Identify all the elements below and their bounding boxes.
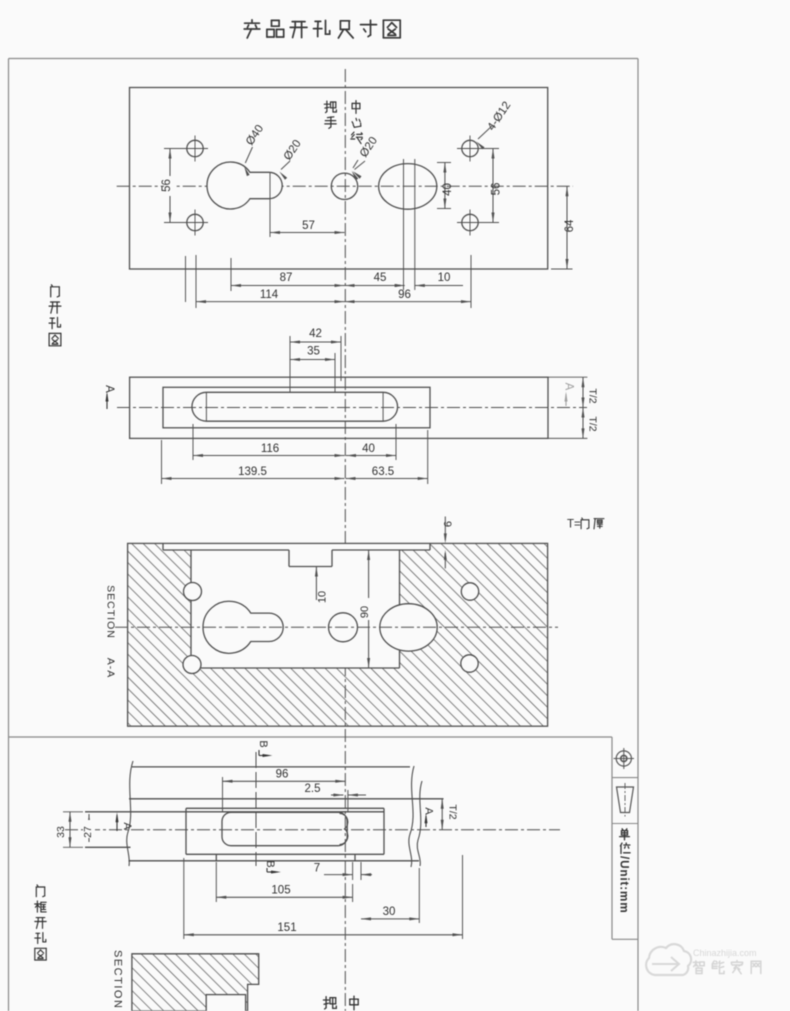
svg-text:56: 56 <box>491 183 503 196</box>
svg-text:90: 90 <box>359 606 371 618</box>
svg-text:35: 35 <box>307 346 320 358</box>
svg-text:A: A <box>563 383 575 391</box>
svg-text:45: 45 <box>374 272 387 284</box>
svg-text:33: 33 <box>55 826 67 838</box>
svg-text:30: 30 <box>383 906 396 918</box>
svg-text:42: 42 <box>309 328 322 340</box>
svg-text:87: 87 <box>280 272 293 284</box>
svg-text:64: 64 <box>564 219 576 232</box>
svg-text:SECTION: SECTION <box>112 950 124 1009</box>
svg-text:T/2: T/2 <box>447 804 459 819</box>
svg-text:40: 40 <box>362 443 375 455</box>
svg-text:6: 6 <box>443 521 455 527</box>
svg-text:151: 151 <box>277 922 296 934</box>
svg-text:63.5: 63.5 <box>372 466 394 478</box>
svg-text:A: A <box>103 385 115 393</box>
svg-text:Chinazhijia.com: Chinazhijia.com <box>693 948 757 958</box>
svg-text:2.5: 2.5 <box>305 783 321 795</box>
svg-text:SECTION: SECTION <box>105 585 117 639</box>
svg-text:T/2: T/2 <box>587 416 599 431</box>
svg-text:116: 116 <box>261 443 279 455</box>
svg-text:B: B <box>257 740 269 747</box>
svg-text:A: A <box>423 807 435 815</box>
svg-text:96: 96 <box>276 769 289 781</box>
svg-text:10: 10 <box>317 591 329 603</box>
svg-text:10: 10 <box>438 272 451 284</box>
svg-text:A: A <box>121 822 133 830</box>
svg-text:T/2: T/2 <box>587 388 599 403</box>
svg-text:105: 105 <box>271 885 290 897</box>
svg-text:A-A: A-A <box>105 658 117 679</box>
svg-text:7: 7 <box>314 863 320 875</box>
svg-text:114: 114 <box>260 289 279 301</box>
svg-text:57: 57 <box>302 220 315 232</box>
svg-text:27: 27 <box>82 826 94 838</box>
svg-text:56: 56 <box>161 179 173 192</box>
svg-text:139.5: 139.5 <box>238 466 267 478</box>
svg-text:T=: T= <box>567 519 581 531</box>
svg-text:/Unit:mm: /Unit:mm <box>617 856 631 914</box>
svg-text:40: 40 <box>442 183 454 196</box>
svg-text:96: 96 <box>398 289 411 301</box>
